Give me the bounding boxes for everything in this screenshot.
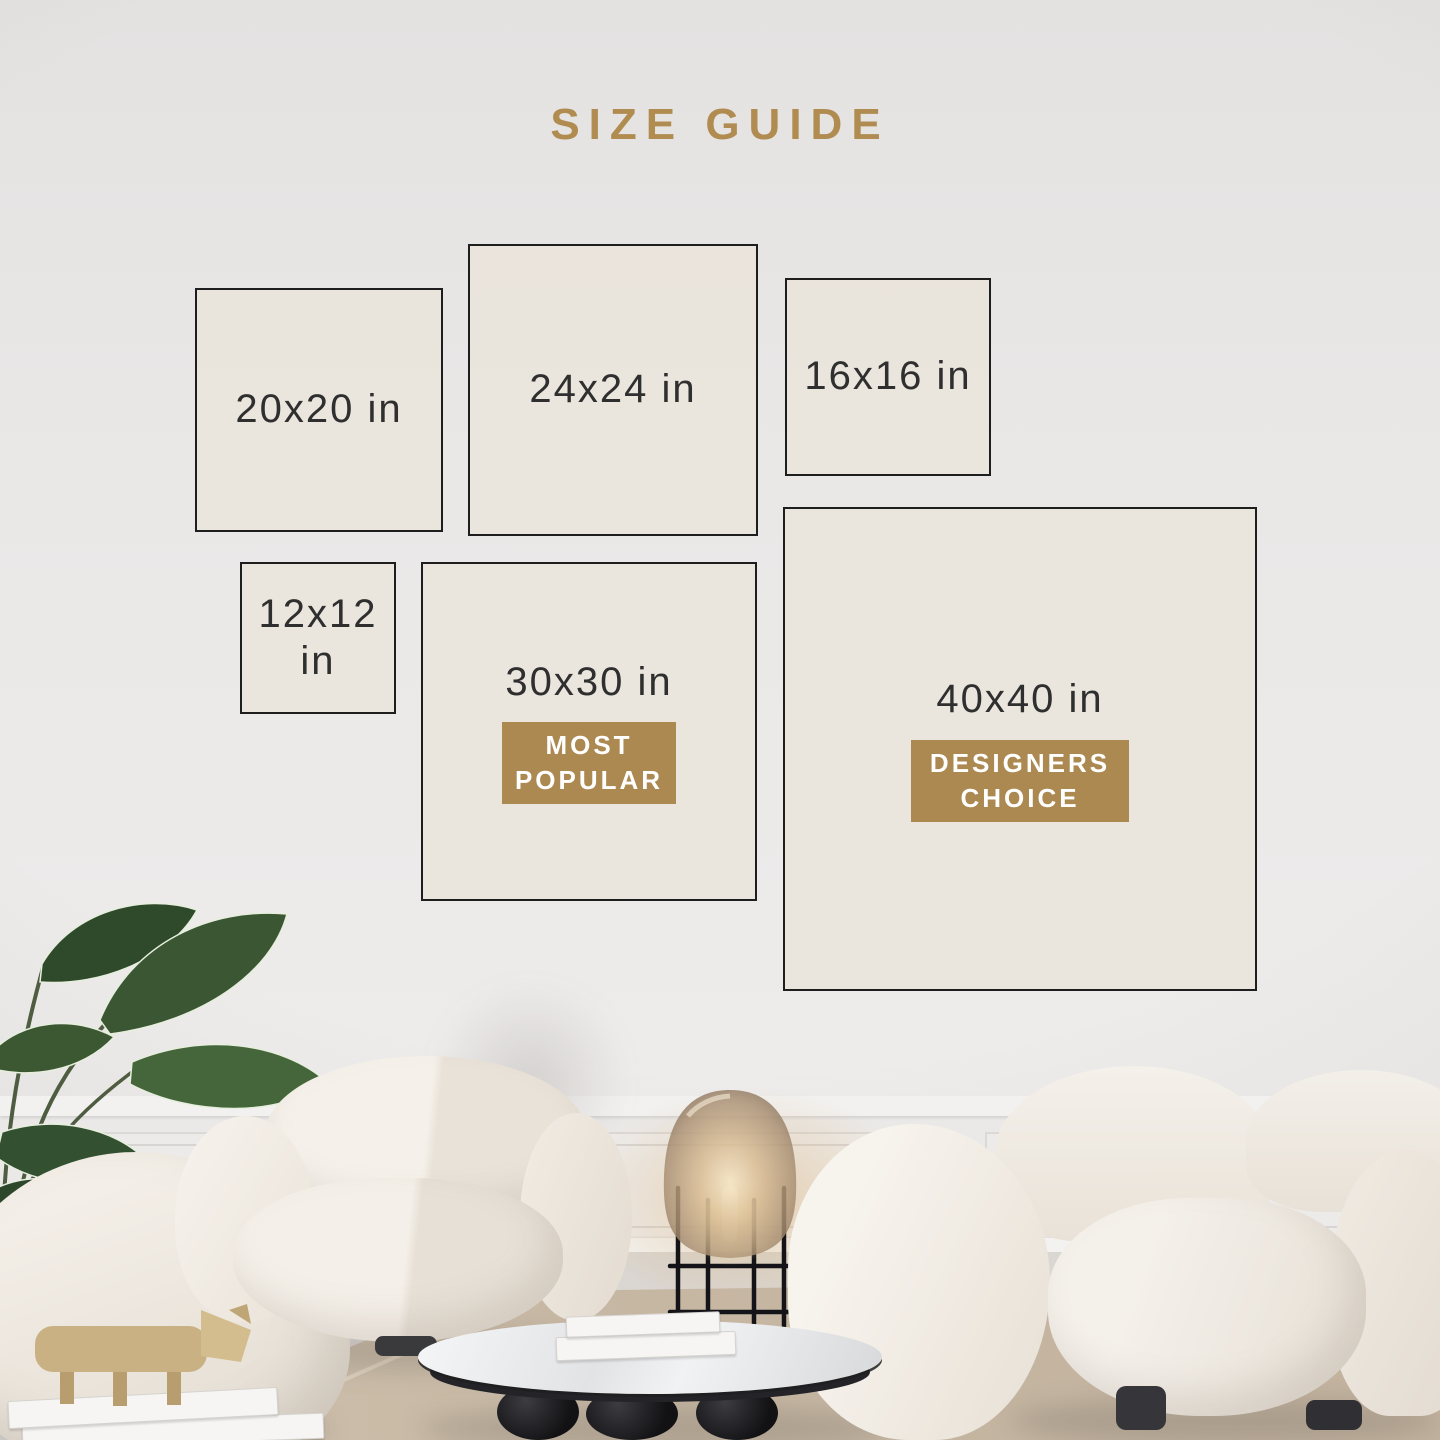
size-label-30x30: 30x30 in bbox=[505, 659, 672, 706]
armchair-seat-cushion bbox=[233, 1178, 563, 1342]
size-box-20x20: 20x20 in bbox=[195, 288, 443, 532]
sofa-left-arm bbox=[788, 1124, 1050, 1440]
sofa-foot bbox=[1116, 1386, 1166, 1430]
size-label-20x20: 20x20 in bbox=[235, 386, 402, 433]
size-guide-title: SIZE GUIDE bbox=[0, 100, 1440, 150]
sofa-seat-cushion bbox=[1048, 1198, 1366, 1416]
size-guide-mockup: SIZE GUIDE 20x20 in 24x24 in 16x16 in 12… bbox=[0, 0, 1440, 1440]
size-box-24x24: 24x24 in bbox=[468, 244, 758, 536]
size-label-16x16: 16x16 in bbox=[804, 353, 971, 400]
size-box-40x40: 40x40 in DESIGNERS CHOICE bbox=[783, 507, 1257, 991]
size-box-30x30: 30x30 in MOST POPULAR bbox=[421, 562, 757, 901]
size-label-40x40: 40x40 in bbox=[936, 676, 1103, 723]
size-label-12x12: 12x12 in bbox=[242, 591, 394, 685]
wooden-dog-figurine bbox=[15, 1302, 275, 1412]
size-box-16x16: 16x16 in bbox=[785, 278, 991, 476]
most-popular-badge: MOST POPULAR bbox=[502, 722, 676, 804]
designers-choice-badge: DESIGNERS CHOICE bbox=[911, 740, 1129, 822]
size-label-24x24: 24x24 in bbox=[529, 366, 696, 413]
sofa-foot bbox=[1306, 1400, 1362, 1430]
size-box-12x12: 12x12 in bbox=[240, 562, 396, 714]
